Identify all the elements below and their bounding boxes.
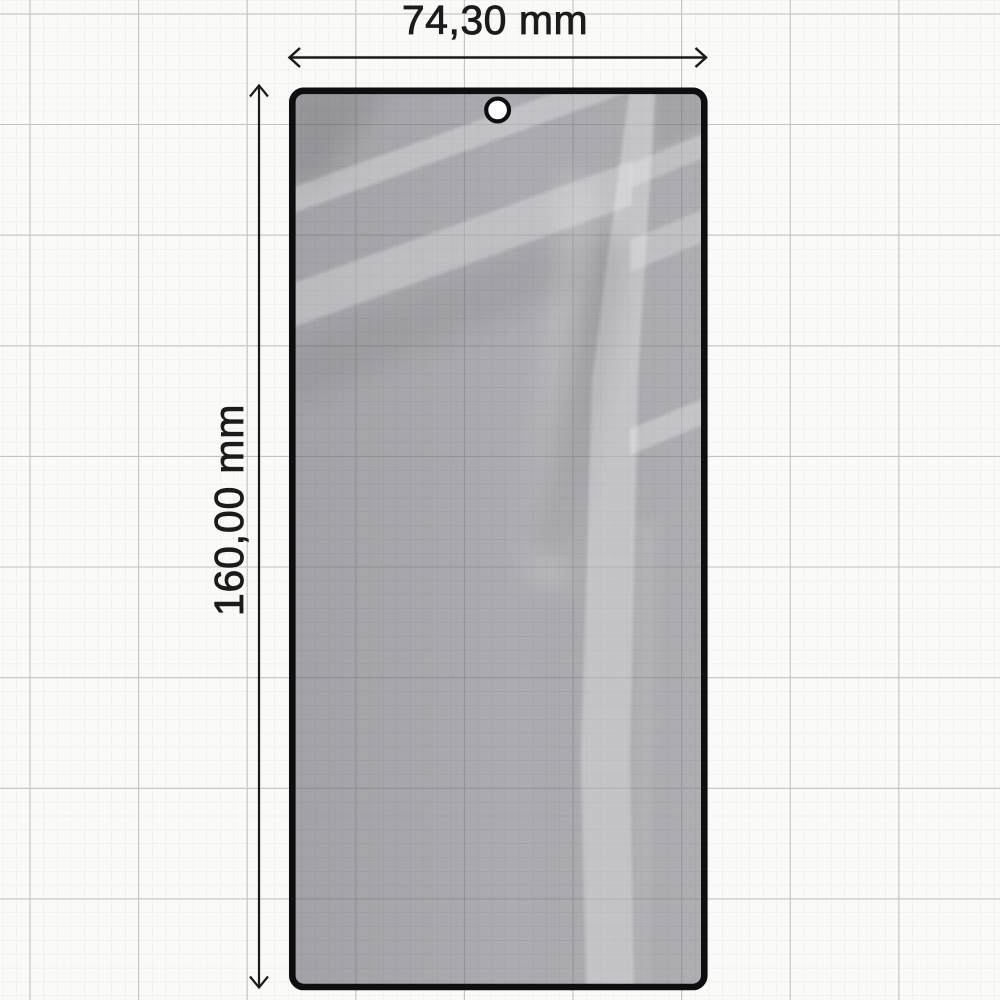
svg-text:160,00 mm: 160,00 mm (206, 404, 252, 616)
svg-text:74,30 mm: 74,30 mm (402, 0, 588, 43)
